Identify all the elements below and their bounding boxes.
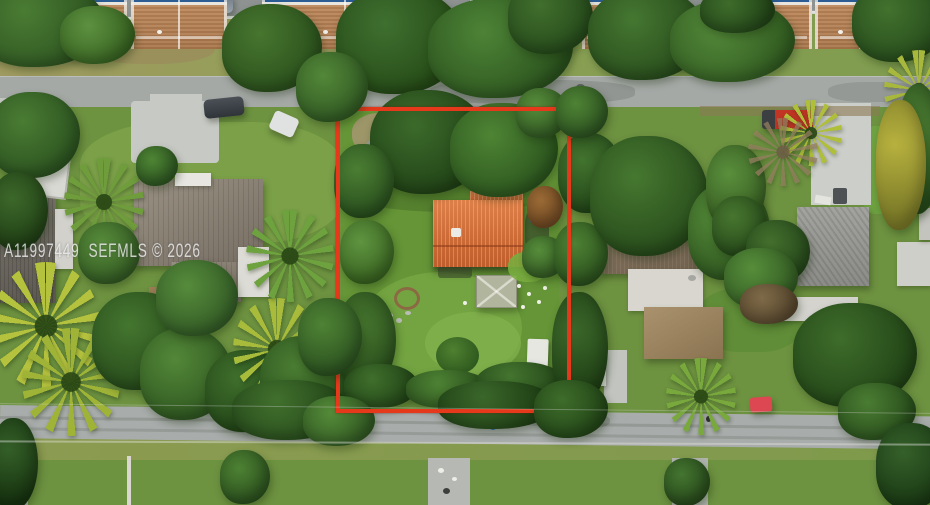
right-garage-roof [644,307,723,359]
townhouse-roof [131,0,227,49]
court-item-dark [443,488,450,494]
tree [156,260,238,336]
tree [556,86,608,138]
townhouse-gap [127,456,131,505]
ac-box [833,188,847,204]
court-item [452,477,457,481]
far-right-shed [897,242,930,286]
tree [876,423,930,505]
courtyard-tree [664,458,710,505]
townhouse-court [428,458,470,505]
property-boundary-outline [336,107,571,413]
left-driveway-apron [150,94,202,104]
left-house-white-addition [175,173,211,186]
palm-tree [246,210,334,302]
palm-tree [666,358,736,435]
watermark-text: A11997449 SEFMLS © 2026 [4,241,201,263]
aerial-photo: A11997449 SEFMLS © 2026 [0,0,930,505]
courtyard-tree [220,450,270,504]
ac-unit [688,275,696,281]
court-item [438,468,444,473]
suv-dark [203,96,245,119]
dead-branches [748,118,818,186]
